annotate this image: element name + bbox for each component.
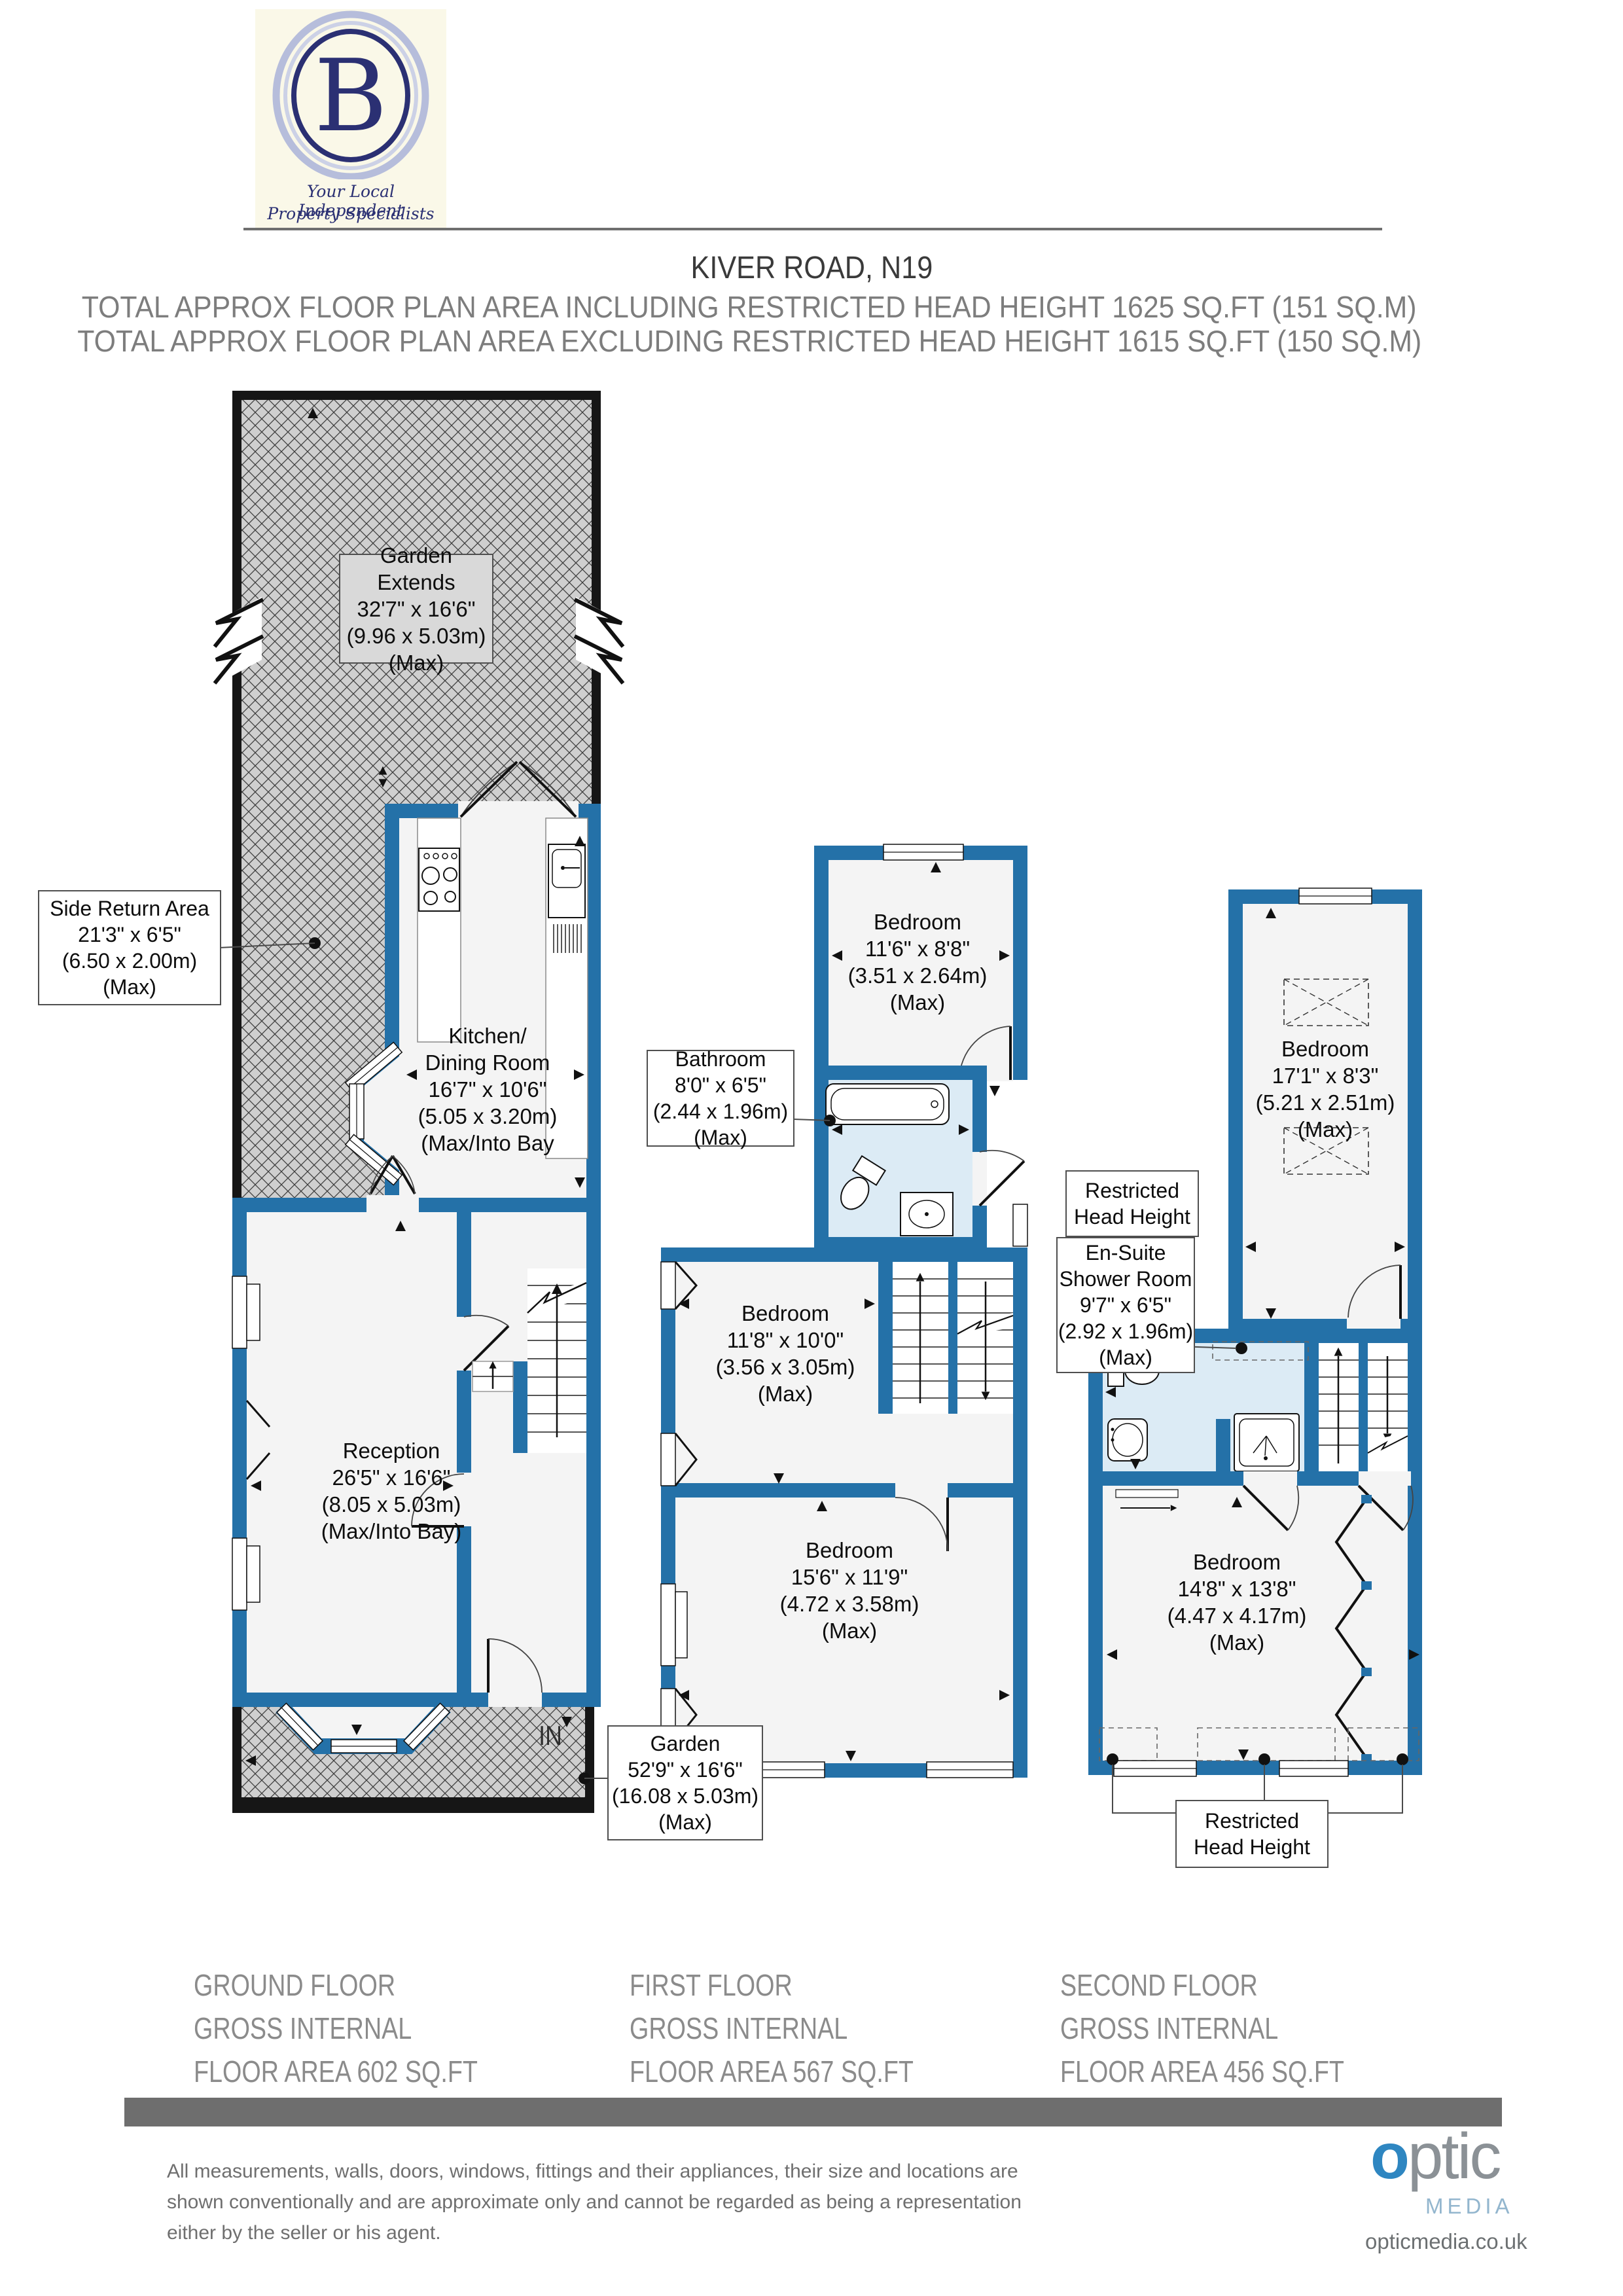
total-area-line-2: TOTAL APPROX FLOOR PLAN AREA EXCLUDING R…: [0, 323, 1499, 359]
restricted-head-height-top-callout: RestrictedHead Height: [1065, 1170, 1199, 1237]
second-bedroom-rear-label: Bedroom17'1" x 8'3"(5.21 x 2.51m)(Max): [1207, 1035, 1443, 1143]
agency-logo: B Your Local Independent Property Specia…: [255, 9, 446, 229]
rhh-dot-left: [1107, 1753, 1118, 1765]
reception-room: [232, 1156, 471, 1707]
reception-label: Reception26'5" x 16'6"(8.05 x 5.03m)(Max…: [274, 1437, 509, 1545]
ground-floor-area-label: GROUND FLOORGROSS INTERNALFLOOR AREA 602…: [194, 1964, 478, 2093]
garden-extends-label: Garden Extends32'7" x 16'6"(9.96 x 5.03m…: [339, 554, 493, 664]
stove-icon: [419, 848, 459, 911]
first-bedroom-middle-label: Bedroom11'8" x 10'0"(3.56 x 3.05m)(Max): [668, 1300, 903, 1407]
second-floor-area-label: SECOND FLOORGROSS INTERNALFLOOR AREA 456…: [1060, 1964, 1344, 2093]
footer-bar: [124, 2098, 1502, 2126]
bathroom-callout: Bathroom8'0" x 6'5"(2.44 x 1.96m)(Max): [647, 1050, 794, 1147]
optic-media-logo: optic: [1370, 2119, 1499, 2193]
agency-logo-emblem: B: [255, 9, 446, 179]
disclaimer-text: All measurements, walls, doors, windows,…: [167, 2156, 1149, 2248]
basin-icon: [1108, 1419, 1147, 1461]
basin-icon: [901, 1193, 953, 1236]
first-bedroom-front-label: Bedroom15'6" x 11'9"(4.72 x 3.58m)(Max): [732, 1537, 967, 1644]
kitchen-bay-window-mid: [349, 1084, 364, 1139]
restricted-head-height-bottom-callout: RestrictedHead Height: [1175, 1800, 1329, 1868]
logo-tagline-2: Property Specialists: [255, 204, 446, 223]
bathtub-icon: [826, 1084, 949, 1124]
optic-media-subtitle: MEDIA: [1425, 2194, 1514, 2219]
rhh-dot-center: [1258, 1753, 1270, 1765]
reception-window-upper: [232, 1276, 260, 1348]
first-bedroom-rear-label: Bedroom11'6" x 8'8"(3.51 x 2.64m)(Max): [800, 908, 1035, 1016]
first-floor-area-label: FIRST FLOORGROSS INTERNALFLOOR AREA 567 …: [630, 1964, 914, 2093]
kitchen-label: Kitchen/Dining Room16'7" x 10'6"(5.05 x …: [370, 1022, 605, 1157]
header-rule: [243, 228, 1382, 230]
optic-media-url: opticmedia.co.uk: [1365, 2229, 1527, 2254]
floorplan-sheet: B Your Local Independent Property Specia…: [0, 0, 1623, 2296]
shower-icon: [1234, 1414, 1299, 1471]
logo-letter: B: [314, 38, 387, 154]
reception-window-lower: [232, 1538, 260, 1610]
entrance-in-label: IN: [539, 1720, 562, 1751]
side-return-callout: Side Return Area21'3" x 6'5"(6.50 x 2.00…: [38, 890, 221, 1005]
total-area-line-1: TOTAL APPROX FLOOR PLAN AREA INCLUDING R…: [0, 289, 1499, 325]
second-bedroom-front-label: Bedroom14'8" x 13'8"(4.47 x 4.17m)(Max): [1119, 1549, 1355, 1656]
ensuite-callout: En-SuiteShower Room9'7" x 6'5"(2.92 x 1.…: [1056, 1237, 1195, 1373]
optic-logo-o: o: [1370, 2120, 1408, 2192]
garden-callout: Garden52'9" x 16'6"(16.08 x 5.03m)(Max): [607, 1725, 763, 1840]
page-title: KIVER ROAD, N19: [0, 250, 1623, 286]
optic-logo-rest: ptic: [1408, 2120, 1500, 2192]
restricted-top-leader-dot: [1236, 1342, 1247, 1354]
rhh-dot-right: [1397, 1753, 1408, 1765]
